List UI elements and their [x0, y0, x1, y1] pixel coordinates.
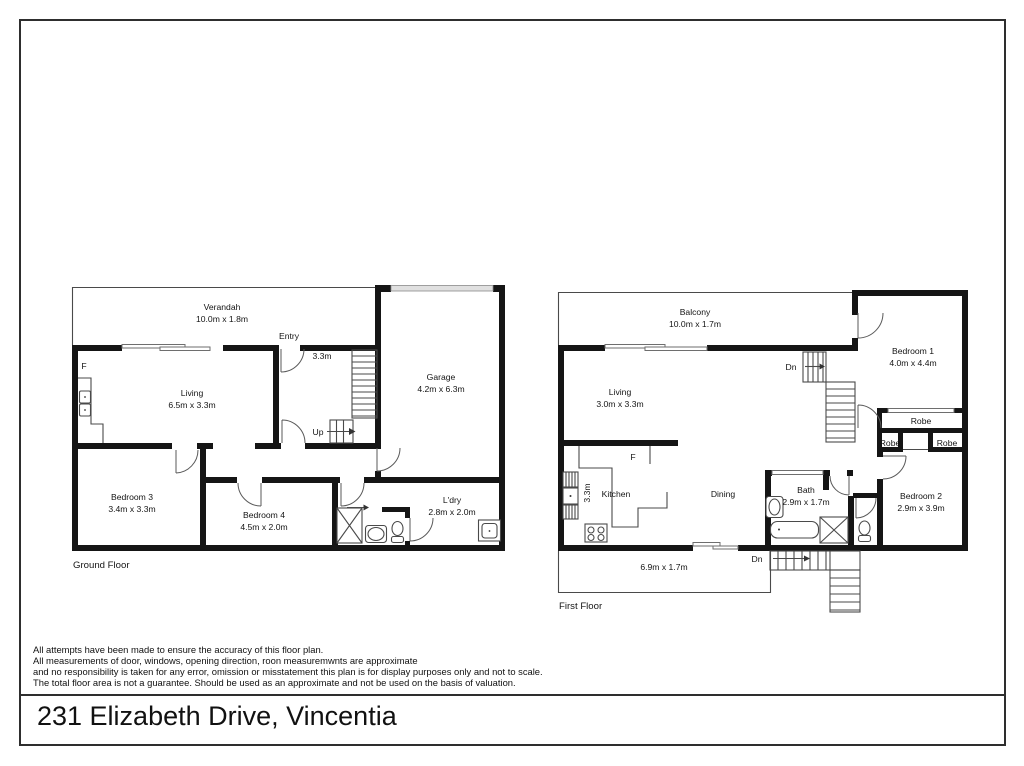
first-floor-stairs — [770, 352, 860, 612]
bedroom3-dims: 3.4m x 3.3m — [108, 504, 155, 514]
kitchen-counter — [579, 446, 667, 527]
ground-floor-stairs — [327, 350, 377, 443]
floorplan-page: Verandah 10.0m x 1.8m Entry 3.3m Living … — [0, 0, 1024, 766]
bath-window — [772, 471, 823, 475]
first-floor-title: First Floor — [559, 601, 603, 612]
bedroom1-dims: 4.0m x 4.4m — [889, 358, 936, 368]
dining-slider-2 — [713, 546, 738, 549]
ground-floor-windows — [122, 286, 493, 351]
bedroom4-door-arc — [238, 483, 261, 506]
entry-label: Entry — [279, 331, 300, 341]
ground-floor-title: Ground Floor — [73, 560, 130, 571]
garage-door-arc — [377, 448, 400, 471]
up-label: Up — [313, 427, 324, 437]
robe-long-label: Robe — [911, 416, 932, 426]
hall-width-label: 3.3m — [312, 351, 331, 361]
laundry-dims: 2.8m x 2.0m — [428, 507, 475, 517]
robe-slider — [888, 409, 954, 413]
dn-lower-label: Dn — [752, 554, 763, 564]
bath-dims: 2.9m x 1.7m — [782, 497, 829, 507]
verandah-label: Verandah — [204, 302, 241, 312]
external-stairs — [770, 551, 860, 612]
bedroom2-door-arc — [883, 456, 906, 479]
bedroom1-door-arc — [858, 313, 883, 338]
bedroom1-label: Bedroom 1 — [892, 346, 934, 356]
bath-label: Bath — [797, 485, 815, 495]
bedroom3-door-arc — [176, 450, 198, 473]
first-floor-labels: Balcony 10.0m x 1.7m Living 3.0m x 3.3m … — [559, 307, 957, 612]
kitchen-width-label: 3.3m — [582, 483, 592, 502]
basin-icon — [366, 526, 387, 543]
living-dims: 6.5m x 3.3m — [168, 400, 215, 410]
kitchen-label: Kitchen — [602, 489, 631, 499]
disclaimer-line: The total floor area is not a guarantee.… — [33, 678, 543, 689]
laundry-label: L'dry — [443, 495, 462, 505]
living-window-2 — [160, 347, 210, 351]
first-floor-plan: Balcony 10.0m x 1.7m Living 3.0m x 3.3m … — [558, 290, 968, 612]
garage-door-band — [391, 286, 493, 292]
dining-slider — [693, 543, 720, 547]
up-arrow — [327, 428, 356, 435]
living-label: Living — [181, 388, 204, 398]
living-label: Living — [609, 387, 632, 397]
balcony-label: Balcony — [680, 307, 711, 317]
bedroom3-label: Bedroom 3 — [111, 492, 153, 502]
balcony-window-2 — [645, 347, 707, 351]
bathroom-door-arc — [341, 483, 364, 506]
laundry-door-arc — [410, 518, 433, 541]
deck-dims: 6.9m x 1.7m — [640, 562, 687, 572]
hall-door-arc — [282, 420, 305, 443]
basin-icon — [766, 497, 783, 518]
fridge-label: F — [81, 361, 86, 371]
laundry-tub-icon — [479, 520, 501, 541]
living-dims: 3.0m x 3.3m — [596, 399, 643, 409]
toilet-icon — [859, 521, 871, 542]
verandah-dims: 10.0m x 1.8m — [196, 314, 248, 324]
stove-icon — [585, 524, 607, 542]
balcony-dims: 10.0m x 1.7m — [669, 319, 721, 329]
disclaimer: All attempts have been made to ensure th… — [33, 645, 543, 689]
dining-label: Dining — [711, 489, 736, 499]
robe-right-label: Robe — [937, 438, 958, 448]
bathtub-icon — [771, 522, 819, 539]
wc-door-arc — [856, 498, 876, 518]
address-title: 231 Elizabeth Drive, Vincentia — [37, 701, 397, 732]
divider-line — [19, 694, 1006, 696]
bedroom4-dims: 4.5m x 2.0m — [240, 522, 287, 532]
bedroom4-label: Bedroom 4 — [243, 510, 285, 520]
bedroom2-label: Bedroom 2 — [900, 491, 942, 501]
garage-dims: 4.2m x 6.3m — [417, 384, 464, 394]
shower-icon — [820, 517, 848, 543]
dn-upper-label: Dn — [786, 362, 797, 372]
fridge-label: F — [630, 452, 635, 462]
robe-left-label: Robe — [880, 438, 901, 448]
shower-icon — [337, 508, 362, 543]
ground-floor-plan: Verandah 10.0m x 1.8m Entry 3.3m Living … — [72, 285, 505, 571]
toilet-icon — [392, 522, 404, 543]
bath-door-arc — [830, 476, 849, 495]
kitchen-appliances — [563, 472, 578, 519]
ground-floor-doors — [176, 349, 433, 541]
bedroom2-dims: 2.9m x 3.9m — [897, 503, 944, 513]
first-floor-doors — [830, 313, 906, 518]
entry-door-arc — [281, 349, 304, 372]
garage-label: Garage — [427, 372, 456, 382]
ground-floor-fixtures — [78, 378, 501, 543]
